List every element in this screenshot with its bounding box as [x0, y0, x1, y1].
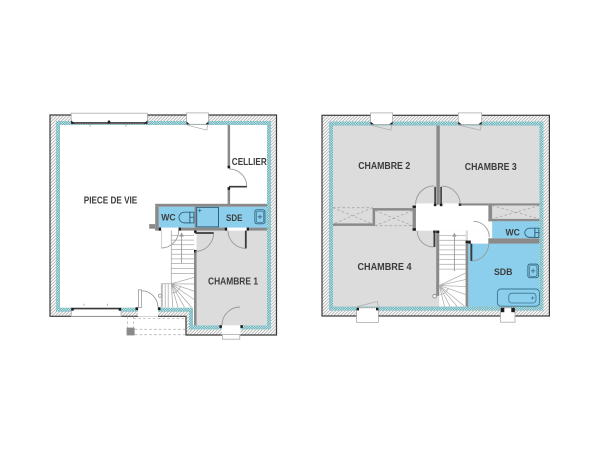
svg-text:CHAMBRE 3: CHAMBRE 3	[465, 162, 517, 173]
svg-text:PIECE DE VIE: PIECE DE VIE	[84, 196, 138, 207]
svg-text:WC: WC	[161, 213, 175, 224]
svg-text:WC: WC	[506, 228, 520, 239]
svg-text:CHAMBRE 4: CHAMBRE 4	[358, 262, 412, 273]
svg-text:CHAMBRE 2: CHAMBRE 2	[358, 161, 410, 172]
svg-text:SDE: SDE	[226, 213, 243, 224]
svg-text:CELLIER: CELLIER	[232, 157, 267, 168]
svg-text:CHAMBRE 1: CHAMBRE 1	[208, 276, 258, 287]
svg-text:SDB: SDB	[494, 267, 513, 278]
